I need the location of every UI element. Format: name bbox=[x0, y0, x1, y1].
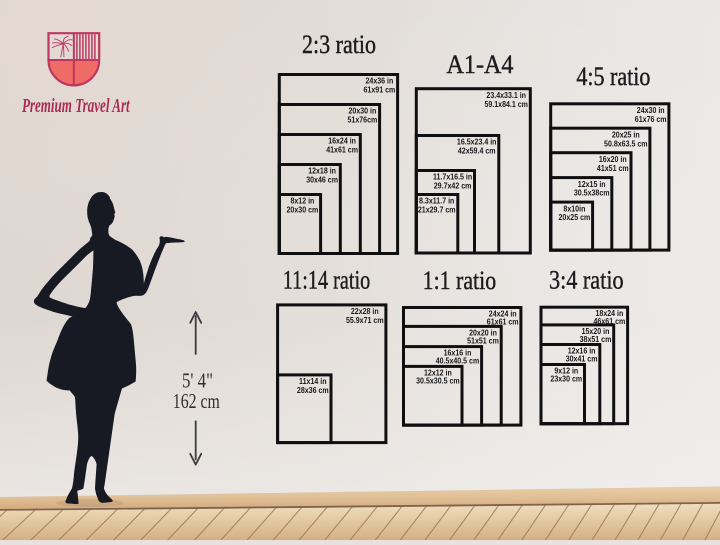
svg-text:3:4 ratio: 3:4 ratio bbox=[549, 266, 624, 295]
svg-text:46x61 cm: 46x61 cm bbox=[594, 316, 626, 326]
svg-text:20x30 cm: 20x30 cm bbox=[287, 205, 319, 215]
svg-text:42x59.4 cm: 42x59.4 cm bbox=[458, 146, 496, 156]
svg-text:A1-A4: A1-A4 bbox=[447, 50, 514, 79]
svg-text:Premium Travel Art: Premium Travel Art bbox=[21, 95, 130, 117]
svg-text:30x46 cm: 30x46 cm bbox=[306, 175, 338, 185]
svg-text:41x51 cm: 41x51 cm bbox=[597, 163, 629, 173]
svg-text:38x51 cm: 38x51 cm bbox=[580, 334, 612, 344]
svg-text:4:5 ratio: 4:5 ratio bbox=[576, 62, 650, 91]
svg-text:61x61 cm: 61x61 cm bbox=[487, 316, 519, 326]
svg-text:21x29.7 cm: 21x29.7 cm bbox=[418, 205, 456, 215]
svg-text:51x51 cm: 51x51 cm bbox=[467, 335, 499, 345]
svg-text:61x76 cm: 61x76 cm bbox=[635, 114, 667, 124]
svg-text:30.5x30.5 cm: 30.5x30.5 cm bbox=[416, 375, 460, 385]
svg-text:11:14 ratio: 11:14 ratio bbox=[283, 266, 370, 295]
svg-text:40.5x40.5 cm: 40.5x40.5 cm bbox=[436, 356, 480, 366]
svg-text:51x76cm: 51x76cm bbox=[348, 115, 378, 125]
svg-text:30.5x38cm: 30.5x38cm bbox=[574, 188, 610, 198]
svg-text:41x61 cm: 41x61 cm bbox=[326, 145, 358, 155]
svg-text:55.9x71 cm: 55.9x71 cm bbox=[346, 315, 384, 325]
svg-text:1:1 ratio: 1:1 ratio bbox=[423, 266, 497, 295]
svg-text:162 cm: 162 cm bbox=[173, 389, 220, 413]
svg-text:30x41 cm: 30x41 cm bbox=[566, 353, 598, 363]
svg-text:23x30 cm: 23x30 cm bbox=[550, 373, 582, 383]
svg-text:50.8x63.5 cm: 50.8x63.5 cm bbox=[604, 138, 648, 148]
svg-text:20x25 cm: 20x25 cm bbox=[559, 212, 591, 222]
svg-text:29.7x42 cm: 29.7x42 cm bbox=[434, 181, 472, 191]
svg-text:28x36 cm: 28x36 cm bbox=[297, 385, 329, 395]
svg-text:61x91 cm: 61x91 cm bbox=[364, 85, 396, 95]
svg-text:2:3 ratio: 2:3 ratio bbox=[302, 30, 376, 59]
svg-text:59.1x84.1 cm: 59.1x84.1 cm bbox=[484, 99, 528, 109]
